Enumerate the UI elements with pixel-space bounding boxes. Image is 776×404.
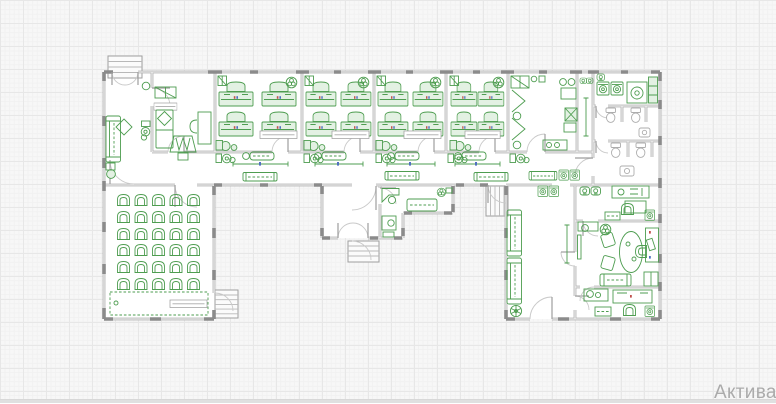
floor-plan-drawing	[0, 0, 776, 403]
stairs-top-entrance	[108, 56, 142, 78]
marker-board-label	[404, 131, 441, 139]
marker-board-label	[260, 131, 297, 139]
toilet	[636, 143, 646, 157]
toilet	[611, 143, 621, 157]
toilet	[631, 108, 641, 122]
stairs-vestibule-exit	[348, 241, 379, 262]
bottom-edge-strip	[0, 399, 776, 403]
drawing-canvas[interactable]: Актива	[0, 0, 776, 403]
stage-label	[170, 300, 207, 308]
stairs-assembly-hall-exit	[215, 290, 238, 318]
marker-board-label	[465, 131, 500, 139]
marker-board-label	[332, 131, 369, 139]
sink	[624, 168, 629, 173]
fire-extinguisher-icon	[107, 170, 116, 179]
sink	[642, 130, 646, 134]
label-box	[154, 103, 177, 110]
toilet	[606, 108, 616, 122]
cabinet	[649, 77, 658, 103]
